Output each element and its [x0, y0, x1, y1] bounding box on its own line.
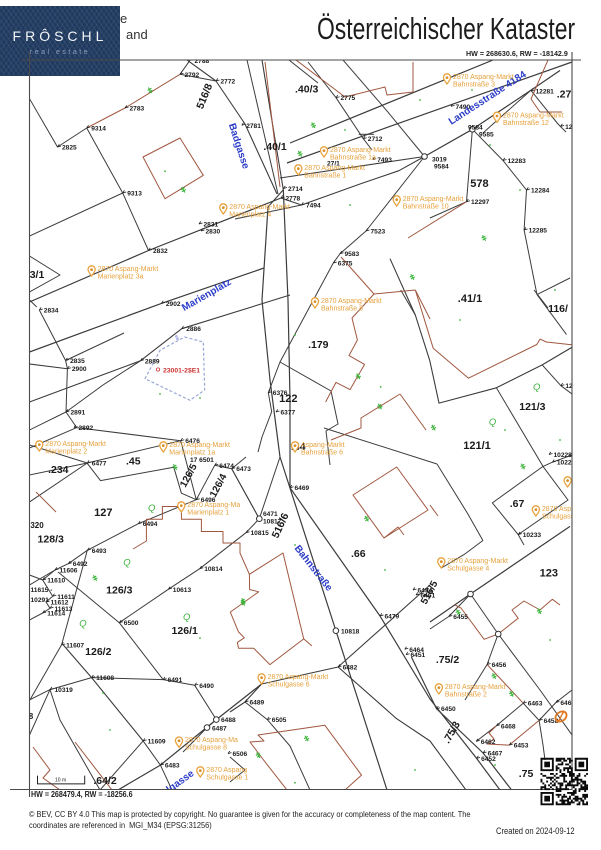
svg-text:2832: 2832	[153, 248, 168, 255]
svg-text:6473: 6473	[236, 466, 251, 473]
svg-text:126/5: 126/5	[178, 462, 200, 490]
svg-text:12284: 12284	[531, 188, 550, 195]
svg-text:11608: 11608	[96, 675, 114, 682]
svg-text:2870 Aspang-Markt: 2870 Aspang-Markt	[98, 266, 159, 273]
svg-text:Bahnstraße 1a: Bahnstraße 1a	[330, 155, 376, 162]
svg-text:9584: 9584	[468, 125, 483, 132]
svg-text:2714: 2714	[288, 186, 303, 193]
svg-text:.41/1: .41/1	[458, 293, 482, 305]
svg-text:Q: Q	[533, 382, 541, 393]
svg-text:2870 Aspa: 2870 Aspa	[542, 506, 575, 513]
svg-text:2892: 2892	[79, 425, 94, 432]
svg-text:2870 Aspang-Markt: 2870 Aspang-Markt	[304, 165, 365, 172]
svg-text:2870 Aspang-Markt: 2870 Aspang-Markt	[330, 147, 391, 154]
svg-text:1229: 1229	[565, 124, 580, 131]
svg-text:6453: 6453	[514, 743, 529, 750]
svg-text:10291: 10291	[31, 597, 50, 604]
svg-text:320: 320	[30, 521, 44, 530]
svg-text:10814: 10814	[204, 566, 223, 573]
svg-text:2886: 2886	[186, 326, 201, 333]
svg-text:Q: Q	[148, 503, 156, 514]
svg-text:10229: 10229	[557, 460, 576, 467]
svg-text:122: 122	[279, 393, 297, 405]
svg-text:Q: Q	[123, 557, 131, 568]
svg-text:12283: 12283	[508, 158, 527, 165]
svg-text:Schulgasse 4: Schulgasse 4	[447, 566, 489, 573]
svg-text:6505: 6505	[272, 717, 287, 724]
svg-text:Bahnstraße 1: Bahnstraße 1	[304, 173, 346, 180]
svg-text:2781: 2781	[246, 123, 261, 130]
svg-text:6490: 6490	[199, 683, 214, 690]
svg-text:.75/2: .75/2	[436, 654, 460, 666]
svg-text:6451: 6451	[411, 652, 426, 659]
svg-text:9583: 9583	[345, 251, 360, 258]
svg-text:6463: 6463	[528, 701, 543, 708]
svg-text:2778: 2778	[286, 196, 301, 203]
svg-text:2792: 2792	[185, 72, 200, 79]
svg-text:6493: 6493	[92, 548, 107, 555]
svg-text:6494: 6494	[143, 521, 158, 528]
svg-text:Q: Q	[489, 417, 497, 428]
svg-text:Bahnstraße 12: Bahnstraße 12	[503, 120, 549, 127]
svg-text:.75: .75	[519, 768, 534, 780]
svg-text:.40/1: .40/1	[263, 141, 287, 153]
svg-text:.45: .45	[126, 456, 141, 468]
svg-text:2870 Aspang-Markt: 2870 Aspang-Markt	[503, 112, 564, 119]
svg-text:6450: 6450	[441, 706, 456, 713]
svg-text:6468: 6468	[501, 723, 516, 730]
svg-text:Marienplatz 1a: Marienplatz 1a	[169, 450, 215, 457]
svg-text:3/1: 3/1	[30, 269, 45, 281]
svg-text:6452: 6452	[481, 756, 496, 763]
svg-text:6456: 6456	[492, 662, 507, 669]
svg-text:6375: 6375	[338, 261, 353, 268]
svg-text:6377: 6377	[281, 410, 296, 417]
svg-text:Marienplatz 2: Marienplatz 2	[45, 449, 87, 456]
svg-text:6471: 6471	[263, 511, 278, 518]
svg-text:Marienplatz 1: Marienplatz 1	[187, 510, 229, 517]
svg-text:12297: 12297	[471, 199, 490, 206]
svg-text:9585: 9585	[479, 132, 494, 139]
svg-text:Marienplatz 3a: Marienplatz 3a	[98, 274, 144, 281]
svg-text:17 6501: 17 6501	[190, 457, 214, 464]
svg-text:§: §	[175, 335, 180, 342]
svg-text:128/3: 128/3	[38, 534, 64, 546]
svg-text:6479: 6479	[385, 614, 400, 621]
svg-text:126/2: 126/2	[85, 646, 111, 658]
svg-text:6477: 6477	[92, 461, 107, 468]
svg-text:121/1: 121/1	[463, 440, 491, 452]
svg-text:11615 -: 11615 -	[31, 587, 53, 594]
svg-text:.64/2: .64/2	[93, 775, 117, 787]
svg-text:578: 578	[470, 178, 488, 190]
svg-text:9314: 9314	[91, 126, 106, 133]
svg-text:6462: 6462	[481, 739, 496, 746]
svg-text:7523: 7523	[371, 229, 386, 236]
svg-text:2825: 2825	[62, 145, 77, 152]
svg-text:Q: Q	[183, 612, 191, 623]
svg-text:10818: 10818	[341, 629, 360, 636]
svg-text:6469: 6469	[295, 485, 310, 492]
svg-text:516/8: 516/8	[194, 82, 215, 111]
svg-text:Bahnstraße 6: Bahnstraße 6	[301, 450, 343, 457]
svg-text:2870 Aspang: 2870 Aspang	[206, 767, 247, 774]
svg-text:1228: 1228	[565, 383, 580, 390]
svg-text:11614: 11614	[47, 611, 65, 618]
svg-text:2775: 2775	[341, 95, 356, 102]
svg-text:10 m: 10 m	[55, 778, 66, 784]
svg-text:11609: 11609	[148, 738, 166, 745]
svg-text:127: 127	[94, 507, 112, 519]
svg-text:2834: 2834	[44, 308, 59, 315]
svg-text:2870 Aspang-Markt: 2870 Aspang-Markt	[45, 441, 106, 448]
svg-text:2889: 2889	[145, 358, 160, 365]
svg-text:123: 123	[540, 568, 558, 580]
svg-text:2870 Aspang-Markt: 2870 Aspang-Markt	[445, 684, 506, 691]
svg-text:6455: 6455	[453, 614, 468, 621]
svg-text:.27: .27	[557, 89, 572, 101]
svg-text:6487: 6487	[212, 726, 227, 733]
svg-text:2870 Aspang-Markt: 2870 Aspang-Markt	[321, 298, 382, 305]
svg-text:Bahnstraße 8: Bahnstraße 8	[321, 306, 363, 313]
svg-text:2831: 2831	[204, 222, 219, 229]
svg-text:6506: 6506	[233, 751, 248, 758]
svg-text:10319: 10319	[55, 687, 74, 694]
svg-text:6489: 6489	[250, 700, 265, 707]
svg-text:Schulgasse: Schulgasse	[145, 768, 197, 810]
svg-text:2835: 2835	[70, 358, 85, 365]
svg-text:.234: .234	[48, 464, 69, 476]
svg-text:7494: 7494	[306, 203, 321, 210]
svg-text:2902: 2902	[166, 301, 181, 308]
svg-text:Schulgasse 6: Schulgasse 6	[268, 682, 310, 689]
svg-text:6474: 6474	[219, 463, 234, 470]
svg-text:Schulgasse 8: Schulgasse 8	[185, 745, 227, 752]
svg-text:6483: 6483	[165, 763, 180, 770]
svg-text:11606: 11606	[60, 568, 78, 575]
svg-text:2870 Aspang-Ma: 2870 Aspang-Ma	[185, 737, 238, 744]
svg-text:126/1: 126/1	[172, 625, 198, 637]
svg-text:6488: 6488	[221, 717, 236, 724]
svg-text:126/3: 126/3	[106, 585, 132, 597]
svg-text:2788: 2788	[195, 58, 210, 65]
svg-text:2870 Aspang-Markt: 2870 Aspang-Markt	[403, 196, 464, 203]
svg-text:2870 Aspang-Markt: 2870 Aspang-Markt	[268, 674, 329, 681]
svg-text:2870 Aspang-Markt: 2870 Aspang-Markt	[169, 442, 230, 449]
svg-text:9313: 9313	[127, 191, 142, 198]
svg-text:Marienplatz 4: Marienplatz 4	[229, 212, 271, 219]
svg-text:6465: 6465	[560, 700, 575, 707]
svg-text:116/: 116/	[548, 303, 568, 315]
svg-text:10228: 10228	[554, 452, 573, 459]
svg-text:9584: 9584	[434, 164, 449, 171]
svg-text:7493: 7493	[377, 157, 392, 164]
svg-text:2712: 2712	[368, 136, 383, 143]
svg-text:Aspang-Markt: Aspang-Markt	[301, 442, 345, 449]
svg-text:11610: 11610	[47, 578, 65, 585]
svg-text:Schulgasse 1: Schulgasse 1	[206, 775, 248, 782]
svg-text:Marienplatz: Marienplatz	[180, 277, 233, 314]
svg-text:3019: 3019	[432, 157, 447, 164]
svg-text:.179: .179	[308, 339, 329, 351]
svg-text:2783: 2783	[130, 106, 145, 113]
svg-text:2870 Aspang-Markt: 2870 Aspang-Markt	[447, 558, 508, 565]
svg-text:Bahnstraße: Bahnstraße	[292, 543, 335, 593]
svg-text:Q: Q	[79, 619, 87, 630]
svg-text:2900: 2900	[72, 366, 87, 373]
svg-text:6500: 6500	[124, 620, 139, 627]
svg-text:6482: 6482	[343, 665, 358, 672]
svg-text:Schulgasse: Schulgasse	[542, 514, 578, 521]
svg-text:.40/3: .40/3	[295, 84, 319, 96]
svg-text:Bahnstraße 10: Bahnstraße 10	[403, 204, 449, 211]
svg-text:23001-2$E1: 23001-2$E1	[163, 368, 200, 375]
svg-text:Bahnstraße 3: Bahnstraße 3	[453, 82, 495, 89]
svg-text:12281: 12281	[536, 89, 555, 96]
svg-text:6491: 6491	[168, 677, 183, 684]
svg-text:10233: 10233	[523, 532, 542, 539]
svg-text:.67: .67	[510, 498, 525, 510]
svg-text:126/4: 126/4	[208, 472, 230, 500]
svg-text:121/3: 121/3	[519, 401, 545, 413]
svg-text:2870 Aspang-Markt: 2870 Aspang-Markt	[453, 74, 514, 81]
svg-text:10815: 10815	[251, 530, 270, 537]
svg-text:Bahnstraße 2: Bahnstraße 2	[445, 692, 487, 699]
svg-text:12285: 12285	[529, 228, 548, 235]
svg-text:2830: 2830	[206, 229, 221, 236]
svg-text:2891: 2891	[71, 410, 86, 417]
svg-text:2870 Aspang-Ma: 2870 Aspang-Ma	[187, 502, 240, 509]
svg-text:11607: 11607	[66, 643, 84, 650]
svg-text:.75/3: .75/3	[441, 719, 463, 745]
svg-text:2870 Aspang-Markt: 2870 Aspang-Markt	[229, 204, 290, 211]
svg-text:2772: 2772	[221, 79, 236, 86]
svg-text:.66: .66	[351, 548, 366, 560]
svg-text:10613: 10613	[173, 587, 192, 594]
